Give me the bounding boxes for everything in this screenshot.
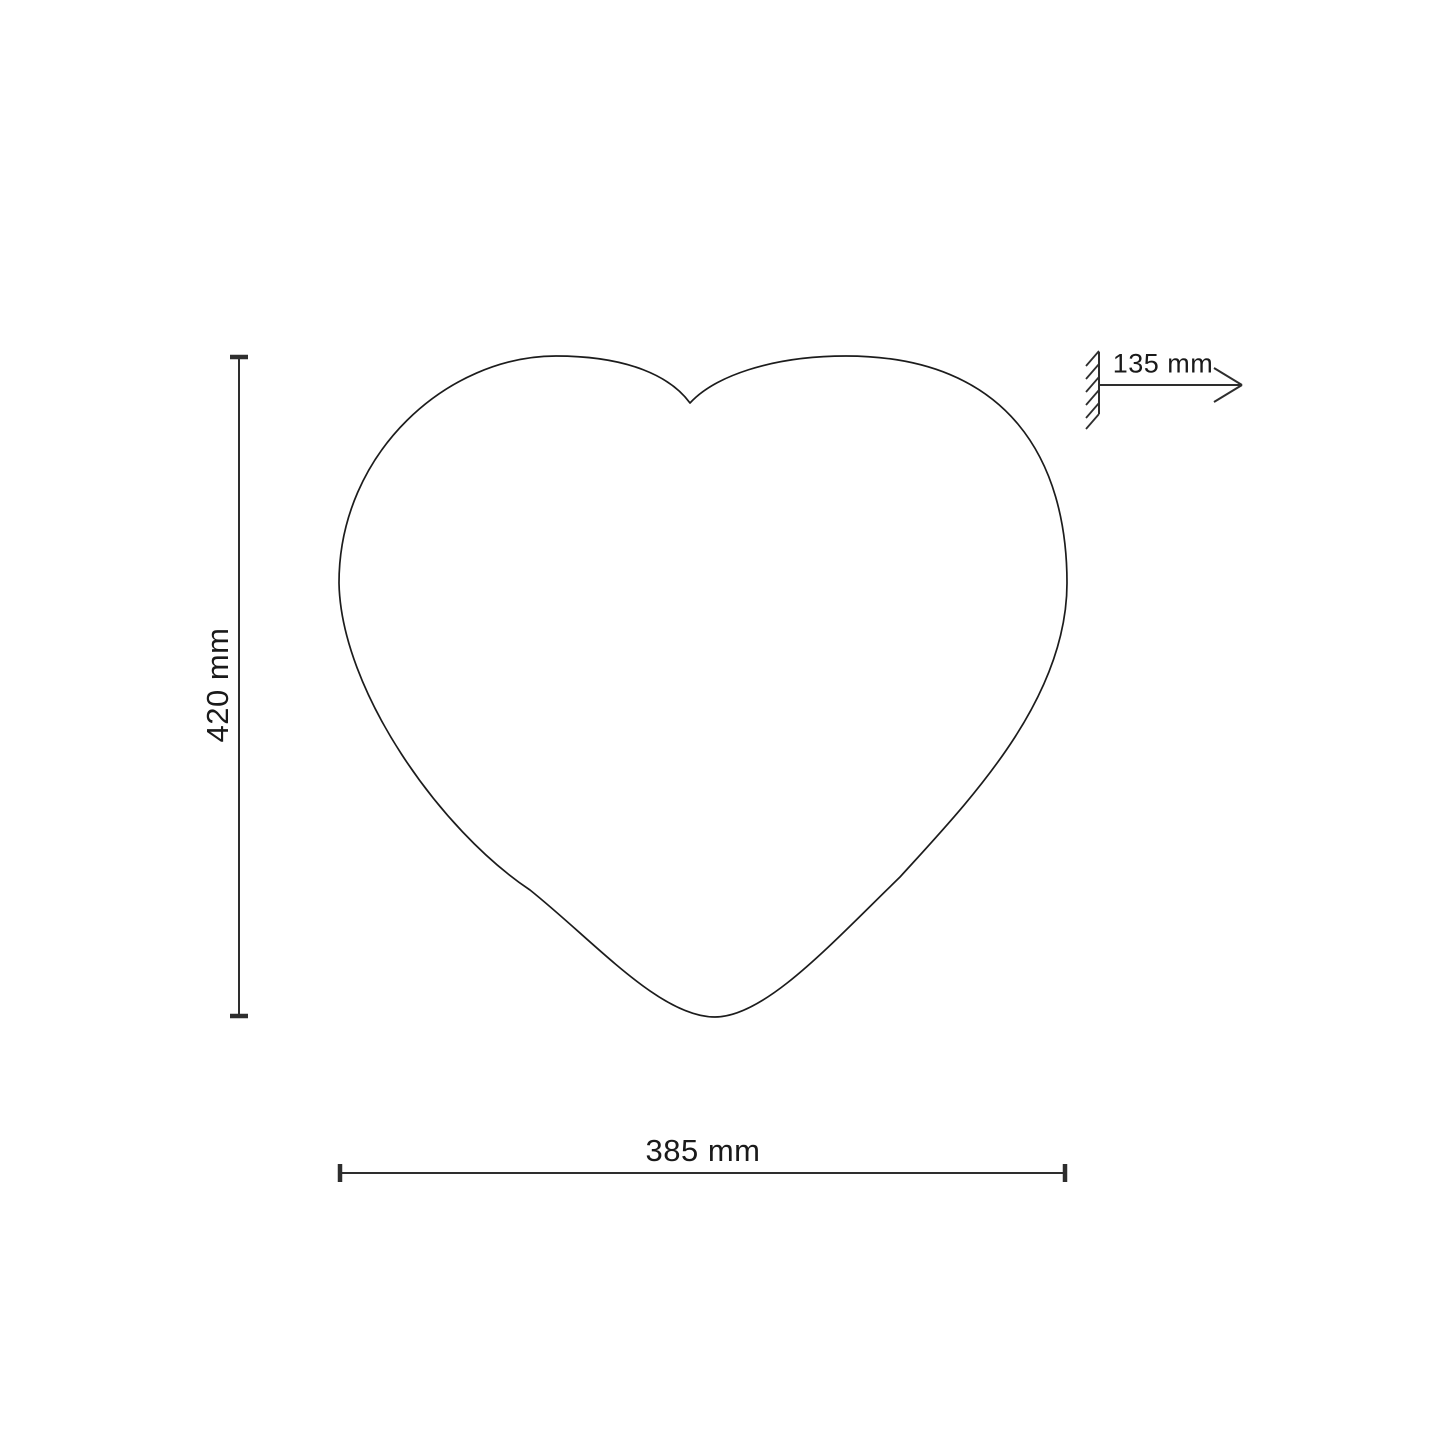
- depth-dimension-label: 135 mm: [1113, 349, 1214, 380]
- dimension-drawing: 420 mm 385 mm 135 mm: [0, 0, 1445, 1445]
- width-dimension-label: 385 mm: [646, 1133, 761, 1169]
- wall-hatch: [1086, 351, 1099, 429]
- heart-outline: [339, 356, 1067, 1017]
- height-dimension-label: 420 mm: [200, 628, 236, 743]
